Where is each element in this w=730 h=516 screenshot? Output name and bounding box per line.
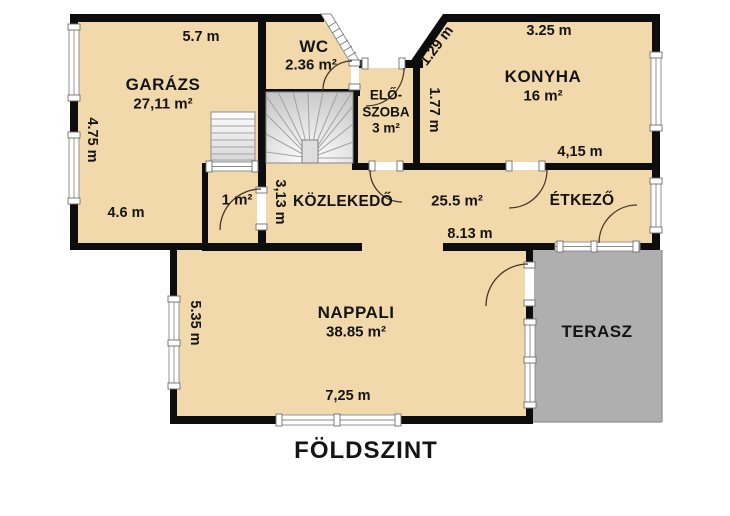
- window: [524, 319, 536, 408]
- entry-hall-name-line1: ELŐ-: [362, 87, 409, 104]
- window: [168, 296, 180, 389]
- garage-area-label: 27,11 m²: [133, 96, 192, 113]
- dim-garage-height: 4.75 m: [84, 117, 100, 162]
- hall-door-opening: [369, 161, 403, 171]
- wc-area-label: 2.36 m²: [285, 57, 337, 74]
- floor-plan-canvas: 5.7 m GARÁZS 27,11 m² 4.75 m 4.6 m WC 2.…: [0, 0, 730, 516]
- wc-name-label: WC: [299, 37, 328, 57]
- dim-corridor-width: 8.13 m: [447, 226, 492, 242]
- dim-kitchen-width: 3.25 m: [526, 23, 571, 39]
- garage-name-label: GARÁZS: [126, 75, 201, 95]
- dim-living-width: 7,25 m: [325, 388, 370, 404]
- corridor-area-label: 25.5 m²: [431, 193, 483, 210]
- straight-staircase: [211, 112, 255, 166]
- window: [68, 132, 80, 204]
- dim-kitchen-left: 1.77 m: [426, 87, 442, 132]
- dining-terrace-window: [555, 241, 640, 252]
- front-door-opening: [362, 58, 405, 69]
- entry-hall-area: 3 m²: [362, 120, 409, 137]
- storage-area-label: 1 m²: [222, 192, 253, 209]
- dim-kitchen-bottom: 4,15 m: [557, 144, 602, 160]
- corridor-name-label: KÖZLEKEDŐ: [293, 193, 393, 211]
- living-name-label: NAPPALI: [318, 303, 395, 323]
- dim-corridor-height: 3,13 m: [272, 179, 288, 224]
- patio-window: [276, 414, 401, 426]
- storage-door-opening: [256, 187, 267, 230]
- dim-living-height: 5.35 m: [187, 300, 203, 345]
- stair-sill: [206, 161, 258, 172]
- kitchen-name-label: KONYHA: [505, 67, 582, 87]
- winder-staircase: [266, 92, 353, 163]
- living-terrace-door-opening: [524, 262, 535, 306]
- living-area-label: 38.85 m²: [326, 324, 386, 341]
- window: [650, 178, 662, 233]
- dim-garage-width: 5.7 m: [182, 29, 219, 45]
- kitchen-area-label: 16 m²: [523, 88, 562, 105]
- entry-hall-label: ELŐ- SZOBA 3 m²: [362, 87, 409, 137]
- entry-hall-name-line2: SZOBA: [362, 104, 409, 121]
- terrace-name-label: TERASZ: [562, 322, 633, 342]
- kitchen-door-opening: [506, 161, 545, 171]
- dim-garage-bottom: 4.6 m: [107, 205, 144, 221]
- window: [68, 24, 80, 101]
- dining-name-label: ÉTKEZŐ: [550, 192, 615, 210]
- window: [650, 52, 662, 131]
- plan-title: FÖLDSZINT: [294, 437, 438, 465]
